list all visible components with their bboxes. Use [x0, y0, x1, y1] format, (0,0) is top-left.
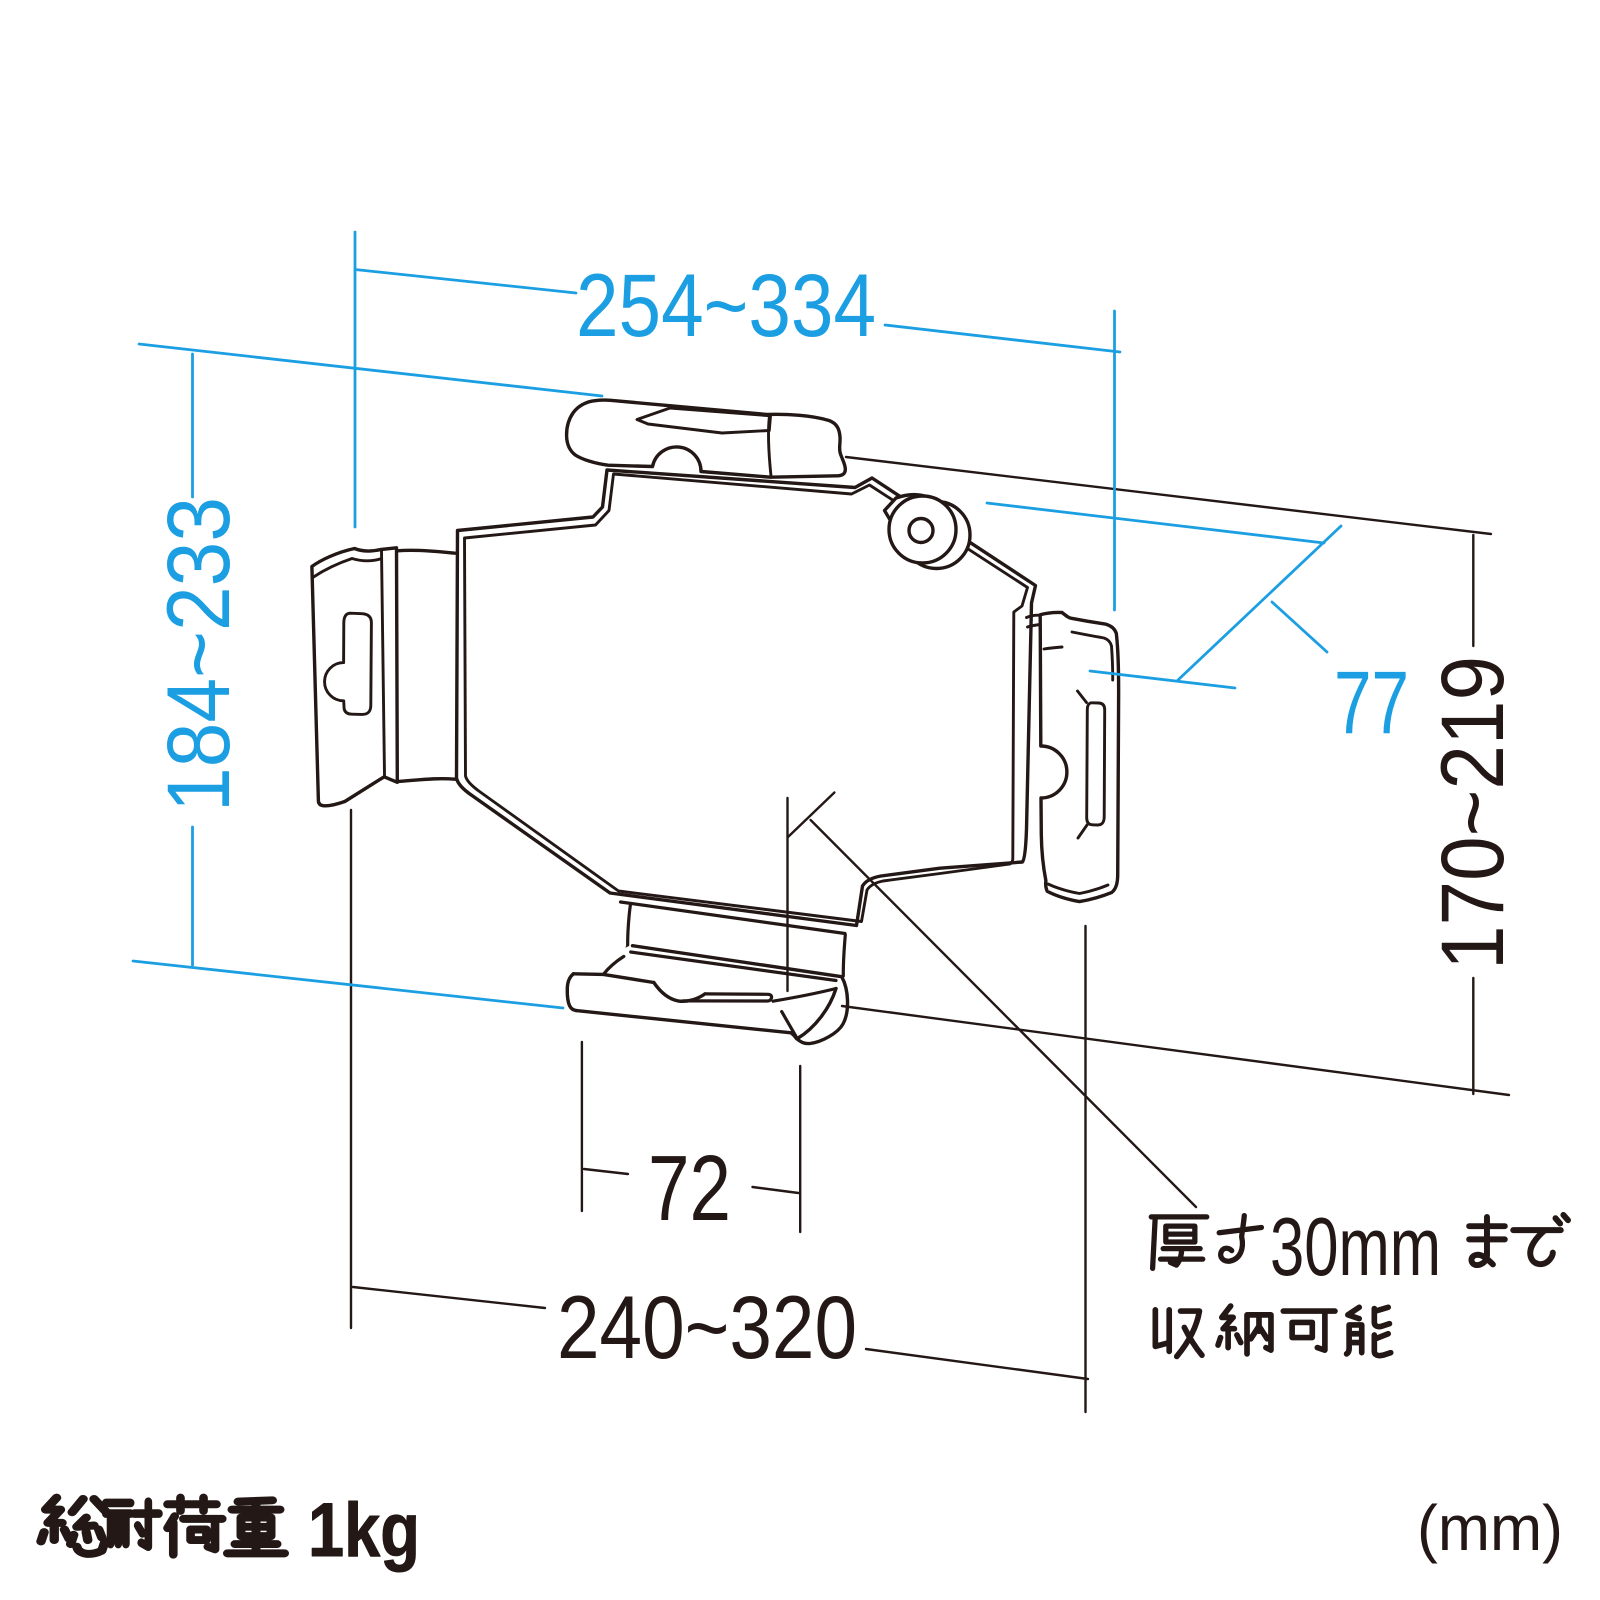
- svg-text:77: 77: [1334, 652, 1409, 752]
- svg-text:170~219: 170~219: [1422, 656, 1522, 970]
- svg-text:254~334: 254~334: [576, 255, 876, 355]
- svg-text:240~320: 240~320: [557, 1277, 857, 1377]
- svg-text:(mm): (mm): [1417, 1492, 1563, 1564]
- svg-text:1kg: 1kg: [308, 1488, 420, 1573]
- svg-text:72: 72: [648, 1136, 731, 1240]
- svg-text:184~233: 184~233: [148, 497, 248, 812]
- svg-text:30mm: 30mm: [1270, 1200, 1441, 1293]
